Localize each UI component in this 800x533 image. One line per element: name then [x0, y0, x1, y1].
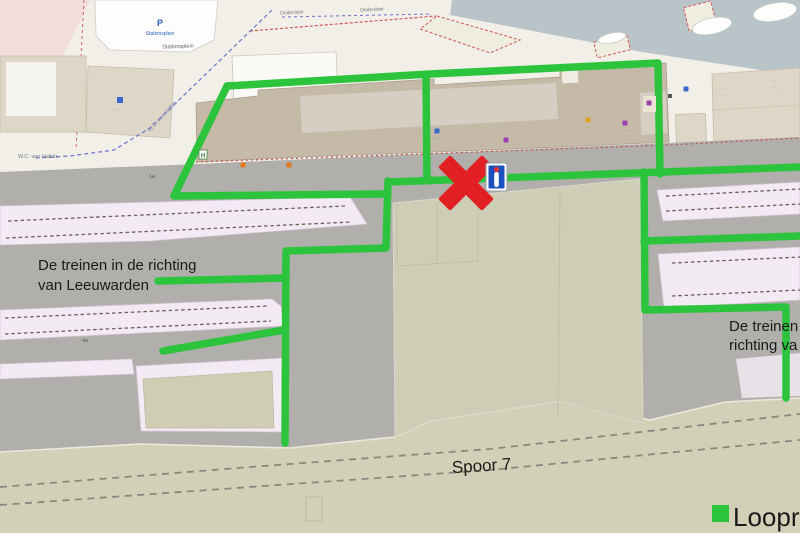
building [86, 66, 174, 138]
poi-label: ····· [585, 125, 592, 130]
route-east-branch [644, 236, 800, 241]
poi-label: ····· [771, 79, 778, 84]
poi-label: ····· [771, 91, 778, 96]
poi-icon [623, 121, 628, 126]
platform-structure [143, 371, 274, 428]
map-canvas[interactable]: ····· [0, 0, 800, 533]
annotation-left-line2: van Leeuwarden [38, 277, 149, 294]
annotation-right-line1: De treinen [729, 318, 798, 335]
street-label: W.C. van Hallstr. [18, 154, 59, 160]
poi-label: ····· [719, 93, 726, 98]
poi-icon [504, 138, 509, 143]
street-label: Stationsplein [162, 43, 194, 50]
station-yard [393, 179, 643, 437]
museum-icon [117, 97, 123, 103]
station-notch [562, 70, 579, 84]
courtyard [6, 62, 56, 116]
track-label: Spoor 7 [451, 455, 512, 478]
poi-icon [586, 118, 591, 123]
poi-icon [647, 101, 652, 106]
poi-icon [684, 87, 689, 92]
annotation-right-line2: richting va [729, 337, 798, 354]
route-branch-1 [158, 278, 284, 281]
poi-icon [287, 163, 292, 168]
legend-swatch [712, 505, 729, 522]
info-stem [494, 172, 499, 187]
poi-icon [241, 163, 246, 168]
parking-name: Stationsplein [146, 31, 175, 37]
annotation-left-line1: De treinen in de richting [38, 257, 196, 274]
street-label: Onderdoor [280, 9, 305, 16]
legend-label: Loopr [733, 502, 800, 532]
poi-label: ····· [622, 128, 629, 133]
info-dot [494, 167, 499, 172]
platform-label: 4a [82, 338, 89, 344]
parking-symbol: P [157, 18, 163, 28]
poi-icon [435, 129, 440, 134]
route-station-link [426, 75, 427, 181]
poi-label: ····· [719, 87, 726, 92]
poi-icon [668, 94, 672, 98]
info-point-icon [486, 163, 508, 192]
museum-label: ····· [115, 107, 122, 112]
bus-stop-marker: H [199, 150, 207, 160]
poi-label: ····· [434, 136, 441, 141]
bus-stop-label: H [201, 154, 205, 160]
station-map[interactable]: ····· [0, 0, 800, 533]
poi-label: ····· [771, 85, 778, 90]
street-label: Onderdoor [360, 6, 385, 13]
platform [658, 247, 800, 308]
platform [736, 353, 800, 398]
